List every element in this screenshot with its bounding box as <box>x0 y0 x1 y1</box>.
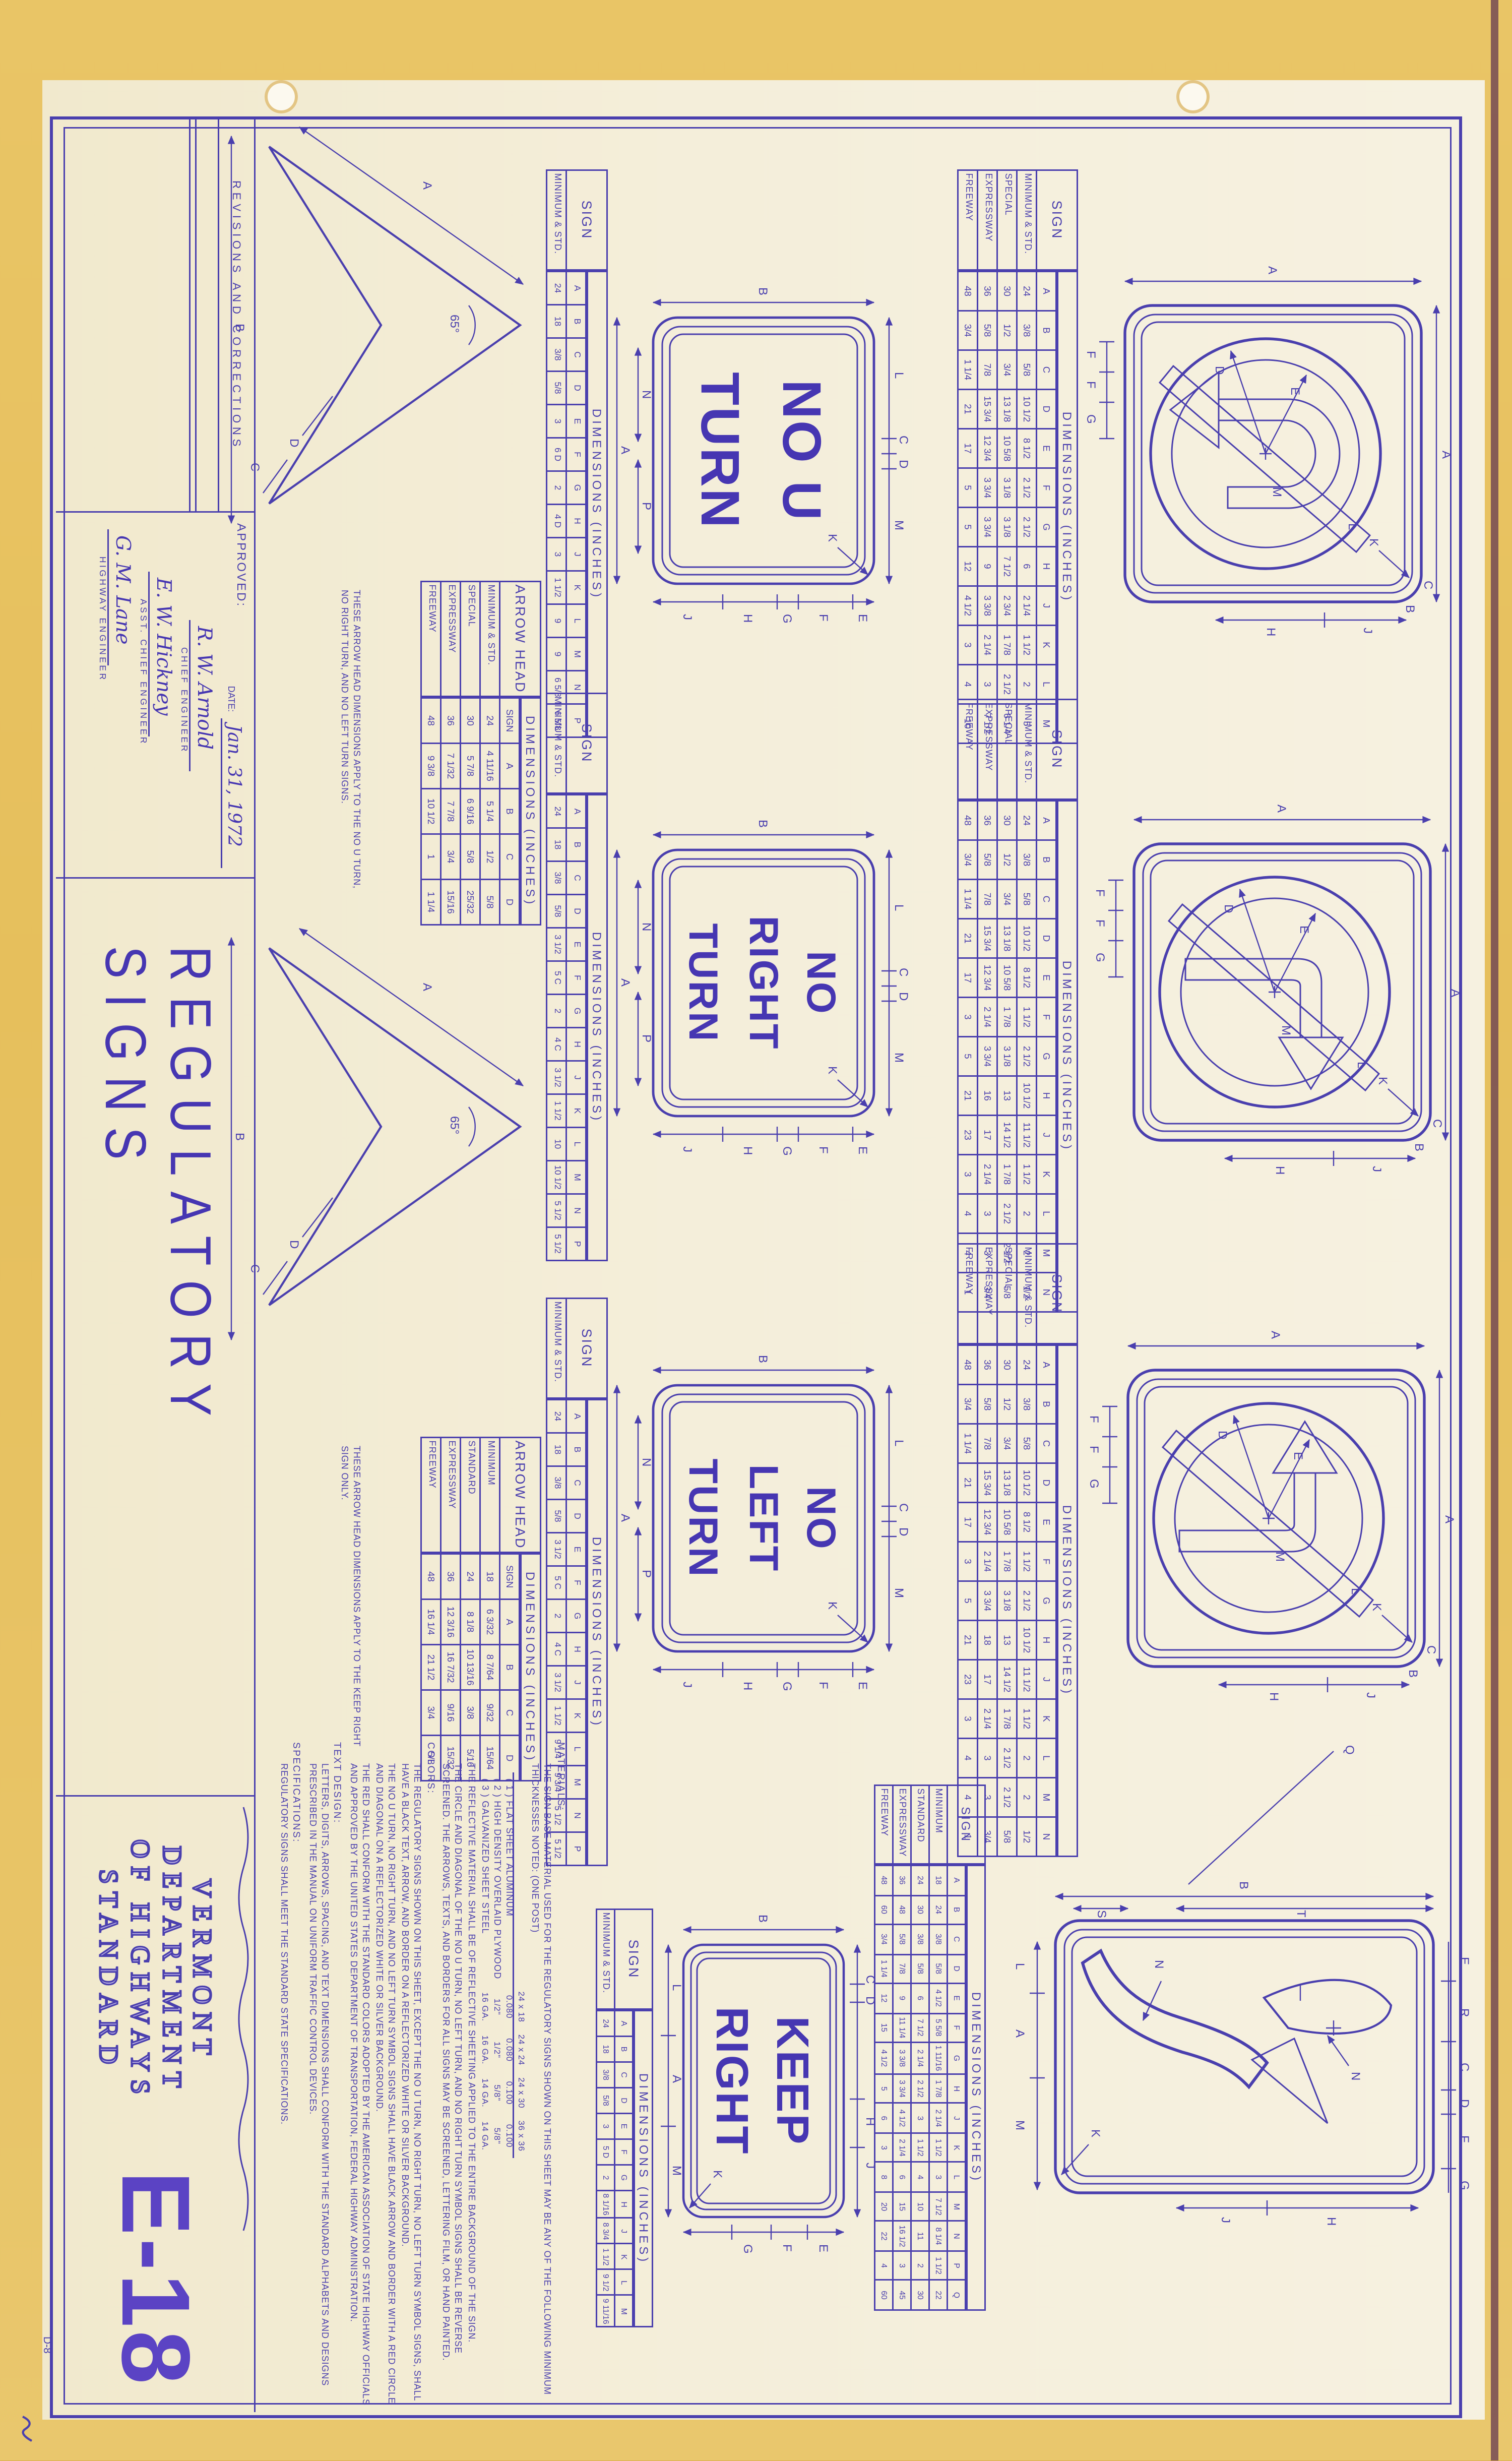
table-col-header: C <box>500 1690 521 1736</box>
table-cell: 8 1/2 <box>1017 429 1037 468</box>
table-cell: 18 <box>978 1621 997 1660</box>
table-row: FREEWAY483/41 1/421173521233441 <box>958 1244 978 1857</box>
table-col-header: G <box>1037 1581 1057 1621</box>
svg-text:NO U: NO U <box>772 380 833 522</box>
table-row-label: SPECIAL <box>997 700 1017 801</box>
keep-right-word-table: SIGNDIMENSIONS (INCHES)ABCDEFGHJKLMMINIM… <box>596 1909 653 2328</box>
table-cell: 15/16 <box>441 880 461 925</box>
signature-title: ASST. CHIEF ENGINEER <box>138 599 147 874</box>
table-cell: 3/4 <box>875 1925 893 1954</box>
table-cell: 30 <box>911 1895 929 1925</box>
materials-note: THE REFLECTIVE MATERIAL SHALL BE OF REFL… <box>463 1763 474 2412</box>
table-cell: 8 7/64 <box>480 1645 500 1690</box>
table-col-header: E <box>1037 429 1057 468</box>
table-cell: 0.100 <box>500 2071 513 2114</box>
svg-text:N: N <box>1152 1960 1166 1968</box>
table-col-header: H <box>1037 1076 1057 1116</box>
table-cell: 16 GA. <box>477 1985 488 2028</box>
table-row-label: FREEWAY <box>958 170 978 271</box>
dimension-table: SIGNDIMENSIONS (INCHES)ABCDEFGHJKLMNMINI… <box>957 699 1078 1313</box>
table-cell: 2 <box>911 2251 929 2281</box>
dimension-table: ARROW HEADDIMENSIONS (INCHES)SIGNABCDMIN… <box>420 581 541 926</box>
svg-text:K: K <box>711 2170 724 2178</box>
table-col-header: C <box>1037 350 1057 390</box>
table-cell: 3 1/2 <box>547 928 566 961</box>
svg-text:D: D <box>287 439 301 447</box>
sheet-title-text: REGULATORY SIGNS <box>91 946 221 1727</box>
table-cell: 7/8 <box>893 1954 911 1984</box>
table-row: EXPRESSWAY367 1/327 7/83/415/16 <box>441 582 461 925</box>
table-col-header: B <box>566 828 587 862</box>
table-cell: 22 <box>875 2222 893 2251</box>
svg-text:H: H <box>741 1682 754 1690</box>
table-cell: 0.080 <box>500 2028 513 2071</box>
svg-text:B: B <box>233 1133 246 1141</box>
table-cell: 13 <box>997 1076 1017 1116</box>
svg-text:D: D <box>1213 366 1226 375</box>
table-cell: 11 <box>911 2222 929 2251</box>
keep-right-symbol-drawing: N N B T S E R C D F G L A M H J K Q <box>1007 1739 1479 2253</box>
table-row: EXPRESSWAY365/87/815 3/412 3/43 3/43 3/4… <box>978 170 997 744</box>
svg-text:E: E <box>1291 1452 1305 1460</box>
table-cell: 2 1/4 <box>978 1699 997 1739</box>
table-col-header: E <box>615 2114 634 2139</box>
table-cell: 13 1/8 <box>997 919 1017 958</box>
svg-text:R: R <box>1458 2008 1471 2017</box>
signature-asst-chief: E. W. Hickney ASST. CHIEF ENGINEER <box>138 572 177 874</box>
table-cell: 9 <box>547 638 566 671</box>
table-cell: 4 <box>875 2251 893 2281</box>
table-cell: 3/4 <box>421 1690 441 1736</box>
table-col-header: F <box>1037 998 1057 1037</box>
table-col-header: G <box>615 2165 634 2191</box>
svg-text:L: L <box>1013 1963 1027 1970</box>
table-row-label: EXPRESSWAY <box>978 1244 997 1345</box>
table-col-header: L <box>566 1128 587 1161</box>
table-cell: 10 1/2 <box>1017 1463 1037 1503</box>
dimension-table: SIGNDIMENSIONS (INCHES)ABCDEFGHJKLMNPMIN… <box>546 693 608 1261</box>
table-cell: 1/2 <box>480 834 500 880</box>
keep-right-symbol-table: SIGNDIMENSIONS (INCHES)ABCDEFGHJKLMNPQMI… <box>874 1785 986 2311</box>
colors-note: THE REGULATORY SIGNS SHOWN ON THIS SHEET… <box>396 1763 420 2412</box>
signature-title: CHIEF ENGINEER <box>178 647 187 874</box>
table-col-header: D <box>566 372 587 405</box>
signature-script: G. M. Lane <box>107 529 133 666</box>
table-cell: 3 3/8 <box>978 586 997 626</box>
table-cell: 6 <box>911 1984 929 2013</box>
svg-text:E: E <box>816 2244 830 2252</box>
svg-text:LEFT: LEFT <box>741 1464 786 1572</box>
table-cell: 3 3/4 <box>978 468 997 508</box>
table-cell: 24 <box>547 794 566 828</box>
table-row: MINIMUM & STD.24183/85/835 D28 1/168 3/4… <box>597 1910 615 2327</box>
table-row: EXPRESSWAY3612 3/1616 7/329/1615/32 <box>441 1438 461 1781</box>
table-cell: 48 <box>421 1553 441 1599</box>
table-row: SPECIAL301/23/413 1/810 5/83 1/83 1/87 1… <box>997 170 1017 744</box>
punch-hole <box>265 80 298 113</box>
svg-text:C: C <box>1458 2063 1471 2071</box>
table-col-header: G <box>566 995 587 1028</box>
table-title: SIGN <box>566 170 607 271</box>
table-col-header: A <box>1037 271 1057 311</box>
svg-text:E: E <box>1288 387 1302 395</box>
table-cell: 3 <box>978 1739 997 1778</box>
table-cell: 24 <box>480 697 500 744</box>
svg-text:H: H <box>741 614 754 623</box>
table-cell: 60 <box>875 1895 893 1925</box>
punch-hole <box>1176 80 1210 113</box>
table-cell: 36 <box>441 1553 461 1599</box>
svg-text:A: A <box>618 1514 632 1522</box>
table-cell: 5/8 <box>911 1954 929 1984</box>
title-block: VERMONT DEPARTMENT OF HIGHWAYS STANDARD … <box>56 1795 256 2412</box>
table-cell: 3/8 <box>597 2062 615 2088</box>
table-cell: 2 <box>547 1599 566 1633</box>
table-col-header: E <box>1037 958 1057 998</box>
table-col-header: H <box>948 2074 967 2104</box>
table-col-header: A <box>500 1599 521 1645</box>
table-cell: 15 3/4 <box>978 390 997 429</box>
table-cell: 11 1/2 <box>1017 1660 1037 1699</box>
signature-chief: R. W. Arnold CHIEF ENGINEER <box>178 620 218 874</box>
svg-text:L: L <box>892 904 906 911</box>
svg-text:A: A <box>618 446 632 454</box>
svg-text:H: H <box>1273 1166 1287 1175</box>
table-col-header: C <box>1037 880 1057 919</box>
table-cell: 10 13/16 <box>461 1645 480 1690</box>
table-cell: 24 <box>547 271 566 305</box>
specifications-label: SPECIFICATIONS: <box>289 1742 302 2412</box>
table-cell: 1/2 <box>997 840 1017 880</box>
no-right-turn-symbol-drawing: A A E D L M F F G J H C B K <box>1092 792 1467 1186</box>
svg-text:K: K <box>826 534 839 542</box>
table-cell: 2 1/4 <box>929 2104 948 2133</box>
table-cell: 1 <box>421 834 441 880</box>
table-cell: 9 3/8 <box>421 744 441 789</box>
table-cell: 5 7/8 <box>461 744 480 789</box>
table-cell: 23 <box>958 1116 978 1155</box>
table-col-header: B <box>500 1645 521 1690</box>
table-cell: 3 <box>958 1542 978 1581</box>
table-cell: 48 <box>958 800 978 840</box>
svg-text:D: D <box>897 1527 910 1536</box>
table-col-header: B <box>1037 840 1057 880</box>
table-cell: 1 1/4 <box>875 1954 893 1984</box>
table-cell: 1 1/4 <box>958 1424 978 1463</box>
table-row-label: MINIMUM & STD. <box>1017 700 1037 801</box>
table-col-header: P <box>566 1832 587 1866</box>
signature-script: E. W. Hickney <box>148 572 174 737</box>
table-cell: 4 <box>958 1739 978 1778</box>
table-row: MINIMUM & STD.24183/85/83 1/25 C24 C3 1/… <box>547 694 566 1261</box>
table-cell: 18 <box>480 1553 500 1599</box>
table-cell: 3 <box>547 405 566 438</box>
svg-text:K: K <box>1367 538 1380 546</box>
table-col-header: F <box>615 2139 634 2165</box>
svg-text:F: F <box>1087 1446 1101 1453</box>
arrow-head-detail-2: 65° A C D <box>248 926 544 1334</box>
arrow-head-table-1: ARROW HEADDIMENSIONS (INCHES)SIGNABCDMIN… <box>420 581 541 926</box>
table-col-header: C <box>566 1466 587 1500</box>
table-cell: 24 <box>547 1399 566 1433</box>
table-cell: 3 <box>911 2104 929 2133</box>
table-cell: 2 <box>1017 665 1037 704</box>
svg-text:RIGHT: RIGHT <box>707 2007 757 2156</box>
strip-divider <box>56 877 256 879</box>
table-cell: 10 1/2 <box>1017 1621 1037 1660</box>
table-cell: 9 <box>893 1984 911 2013</box>
svg-text:L: L <box>670 1984 683 1991</box>
table-cell: 5 <box>958 1037 978 1076</box>
table-cell: 3/4 <box>441 834 461 880</box>
table-cell: 1 1/2 <box>911 2133 929 2163</box>
table-cell: 11 1/2 <box>1017 1116 1037 1155</box>
svg-text:G: G <box>780 1682 794 1691</box>
table-cell: 8 1/2 <box>1017 1503 1037 1542</box>
svg-text:G: G <box>1093 953 1107 962</box>
table-cell: 1 7/8 <box>997 1699 1017 1739</box>
svg-text:D: D <box>1458 2099 1471 2108</box>
svg-text:A: A <box>1275 805 1288 813</box>
table-cell: 4 11/16 <box>480 744 500 789</box>
svg-text:F: F <box>816 614 830 622</box>
table-cell: 8 1/4 <box>929 2222 948 2251</box>
svg-text:65°: 65° <box>448 315 461 333</box>
table-cell: 13 1/8 <box>997 390 1017 429</box>
table-cell: 5/8 <box>1017 1424 1037 1463</box>
table-col-header: A <box>566 271 587 305</box>
table-col-header: G <box>1037 1037 1057 1076</box>
table-cell: 3/8 <box>547 338 566 372</box>
arrow-head-note-2: THESE ARROW HEAD DIMENSIONS APPLY TO THE… <box>336 1446 360 1748</box>
agency-line: DEPARTMENT <box>156 1795 187 2146</box>
table-cell: 3/8 <box>1017 1385 1037 1424</box>
table-cell: 1 1/2 <box>1017 998 1037 1037</box>
wavy-line <box>237 1807 253 2261</box>
svg-text:B: B <box>1406 1670 1420 1678</box>
table-cell: 15 <box>893 2192 911 2222</box>
arrowhead-b-dim: B <box>224 935 245 1343</box>
table-col-header: K <box>1037 1155 1057 1194</box>
svg-text:H: H <box>1267 1692 1281 1701</box>
table-cell: 8 3/4 <box>597 2219 615 2244</box>
table-col-header: J <box>566 1061 587 1094</box>
svg-text:P: P <box>640 1034 653 1042</box>
table-cell: 5 C <box>547 1566 566 1599</box>
specifications-note: REGULATORY SIGNS SHALL MEET THE STANDARD… <box>275 1763 287 2412</box>
table-dims-header: DIMENSIONS (INCHES) <box>587 271 607 737</box>
table-col-header: F <box>1037 1542 1057 1581</box>
table-row-label: MINIMUM & STD. <box>1017 1244 1037 1345</box>
table-cell: 5/8 <box>893 1925 911 1954</box>
table-cell: 0.100 <box>500 2115 513 2158</box>
svg-text:M: M <box>1270 487 1284 497</box>
no-right-turn-word-table: SIGNDIMENSIONS (INCHES)ABCDEFGHJKLMNPMIN… <box>546 693 608 1261</box>
table-cell: 2 1/2 <box>1017 1037 1037 1076</box>
svg-text:J: J <box>1364 1692 1377 1698</box>
table-cell: 4 <box>958 665 978 704</box>
table-col-header: J <box>1037 1660 1057 1699</box>
table-row-label: FREEWAY <box>875 1786 893 1865</box>
table-cell: 1 1/4 <box>421 880 441 925</box>
table-cell: 4 C <box>547 1633 566 1666</box>
table-cell: 17 <box>978 1116 997 1155</box>
svg-text:N: N <box>640 1458 653 1466</box>
table-cell: 24 <box>1017 271 1037 311</box>
table-title: SIGN <box>948 1786 985 1865</box>
table-col-header: N <box>948 2222 967 2251</box>
approval-block: APPROVED: DATE: Jan. 31, 1972 R. W. Arno… <box>59 517 253 874</box>
materials-note: THE CIRCLE AND DIAGONAL OF THE NO U TURN… <box>437 1763 461 2412</box>
table-cell: 1 1/2 <box>547 571 566 604</box>
table-col-header: A <box>566 1399 587 1433</box>
svg-text:M: M <box>1013 2120 1027 2130</box>
table-cell: 1 7/8 <box>997 626 1017 665</box>
table-cell: 15 <box>875 2013 893 2043</box>
table-cell: 3 1/8 <box>997 1581 1017 1621</box>
table-row: ( 3 ) GALVANIZED SHEET STEEL16 GA.16 GA.… <box>477 1772 488 2158</box>
table-row: MINIMUM & STD.243/85/810 1/28 1/21 1/22 … <box>1017 700 1037 1312</box>
table-cell: 4 <box>958 1194 978 1234</box>
table-dims-header: DIMENSIONS (INCHES) <box>587 794 607 1261</box>
table-cell: 2 1/4 <box>911 2043 929 2074</box>
table-cell: 7 1/2 <box>997 547 1017 586</box>
table-col-header: A <box>615 2010 634 2037</box>
table-cell: 3/4 <box>997 880 1017 919</box>
table-cell: 5 D <box>597 2139 615 2165</box>
table-title: SIGN <box>1037 1244 1078 1345</box>
table-row-label: SPECIAL <box>461 582 480 698</box>
svg-text:P: P <box>640 502 653 510</box>
table-cell: 2 1/2 <box>1017 508 1037 547</box>
table-col-header: G <box>948 2043 967 2074</box>
table-cell: 3 <box>929 2163 948 2192</box>
table-row: ( 2 ) HIGH DENSITY OVERLAID PLYWOOD1/2"1… <box>489 1772 500 2158</box>
table-col-header: K <box>566 1699 587 1733</box>
table-row-label: MINIMUM & STD. <box>547 1299 566 1399</box>
table-cell: 36 <box>978 800 997 840</box>
svg-text:G: G <box>741 2244 754 2254</box>
table-col-header: E <box>566 405 587 438</box>
table-row-label: MINIMUM & STD. <box>597 1910 615 2010</box>
table-col-header: L <box>615 2270 634 2296</box>
table-col-header: B <box>566 305 587 338</box>
table-col-header: F <box>566 961 587 995</box>
svg-text:N: N <box>1349 2072 1362 2080</box>
table-cell: 5 C <box>547 961 566 995</box>
table-col-header: G <box>1037 508 1057 547</box>
table-cell: 1 1/2 <box>1017 1699 1037 1739</box>
table-cell: 10 5/8 <box>997 1503 1017 1542</box>
table-cell: 5 <box>958 508 978 547</box>
svg-text:K: K <box>1089 2129 1102 2137</box>
table-cell: 48 <box>958 1344 978 1385</box>
table-row-label: FREEWAY <box>421 1438 441 1554</box>
svg-text:J: J <box>680 1682 694 1688</box>
table-cell: 5/8 <box>1017 880 1037 919</box>
table-col-header: L <box>948 2163 967 2192</box>
table-cell: 2 3/4 <box>997 586 1017 626</box>
landscape-drawing: REVISIONS AND CORRECTIONS APPROVED: DATE… <box>0 0 1512 2461</box>
svg-text:M: M <box>892 520 906 530</box>
table-col-header: M <box>615 2296 634 2327</box>
table-cell: 25/32 <box>461 880 480 925</box>
table-title: SIGN <box>1037 700 1078 801</box>
table-col-header: K <box>615 2244 634 2270</box>
table-cell: 30 <box>997 1344 1017 1385</box>
table-col-header: K <box>1037 1699 1057 1739</box>
table-cell: 24 <box>597 2010 615 2037</box>
table-cell: 7 1/32 <box>441 744 461 789</box>
table-cell: 13 <box>997 1621 1017 1660</box>
no-u-turn-symbol-drawing: A A E D L M F F G J H C B K <box>1083 254 1458 647</box>
svg-text:A: A <box>420 181 434 190</box>
table-cell: 3 3/4 <box>978 1037 997 1076</box>
table-cell: 12 3/4 <box>978 958 997 998</box>
table-cell: 18 <box>547 305 566 338</box>
svg-text:K: K <box>826 1602 839 1610</box>
table-cell: 8 1/2 <box>1017 958 1037 998</box>
svg-text:A: A <box>1442 1515 1456 1523</box>
table-col-header: P <box>948 2251 967 2281</box>
table-cell: 1 1/2 <box>1017 1542 1037 1581</box>
table-row-label: EXPRESSWAY <box>441 582 461 698</box>
svg-text:N: N <box>640 922 653 931</box>
table-cell: 3/4 <box>958 311 978 350</box>
table-col-header: H <box>1037 547 1057 586</box>
table-cell: 16 7/32 <box>441 1645 461 1690</box>
table-col-header: D <box>1037 390 1057 429</box>
table-cell: 10 1/2 <box>1017 1076 1037 1116</box>
table-cell: 30 <box>911 2281 929 2310</box>
table-col-header: J <box>615 2219 634 2244</box>
svg-text:G: G <box>780 614 794 624</box>
svg-text:F: F <box>816 1146 830 1154</box>
table-cell: 5/8 <box>547 895 566 928</box>
svg-text:H: H <box>741 1146 754 1155</box>
table-cell: 10 5/8 <box>997 958 1017 998</box>
svg-text:F: F <box>816 1682 830 1689</box>
table-title: SIGN <box>566 1299 607 1399</box>
table-col-header: C <box>566 338 587 372</box>
table-cell: 1/2 <box>997 311 1017 350</box>
table-cell: 2 1/2 <box>911 2074 929 2104</box>
keep-right-sign-drawing: KEEP RIGHT C D H J B E F G L A M K <box>659 1902 871 2265</box>
table-cell: 60 <box>875 2281 893 2310</box>
table-cell: 2 <box>1017 1194 1037 1234</box>
table-cell: 2 <box>547 471 566 505</box>
table-col-header: B <box>1037 311 1057 350</box>
svg-text:K: K <box>1370 1603 1383 1611</box>
dimension-table: SIGNDIMENSIONS (INCHES)ABCDEFGHJKLMMINIM… <box>596 1909 653 2328</box>
svg-text:A: A <box>1269 1331 1282 1339</box>
table-row-label: SPECIAL <box>997 1244 1017 1345</box>
table-col-header: SIGN <box>500 1553 521 1599</box>
svg-text:D: D <box>863 1996 877 2005</box>
table-col-header: B <box>500 789 521 834</box>
table-cell: 0.080 <box>500 1985 513 2028</box>
table-col-header: J <box>566 538 587 571</box>
table-col-header: H <box>615 2191 634 2219</box>
table-cell: 3/4 <box>997 1424 1017 1463</box>
table-cell: 6 <box>875 2104 893 2133</box>
svg-text:G: G <box>1458 2181 1471 2190</box>
svg-text:B: B <box>1412 1143 1426 1151</box>
table-cell: 16 GA. <box>477 2028 488 2071</box>
text-design-label: TEXT DESIGN: <box>330 1742 342 2412</box>
svg-text:65°: 65° <box>448 1116 461 1134</box>
table-col-header: 24 x 24 <box>513 2028 525 2071</box>
